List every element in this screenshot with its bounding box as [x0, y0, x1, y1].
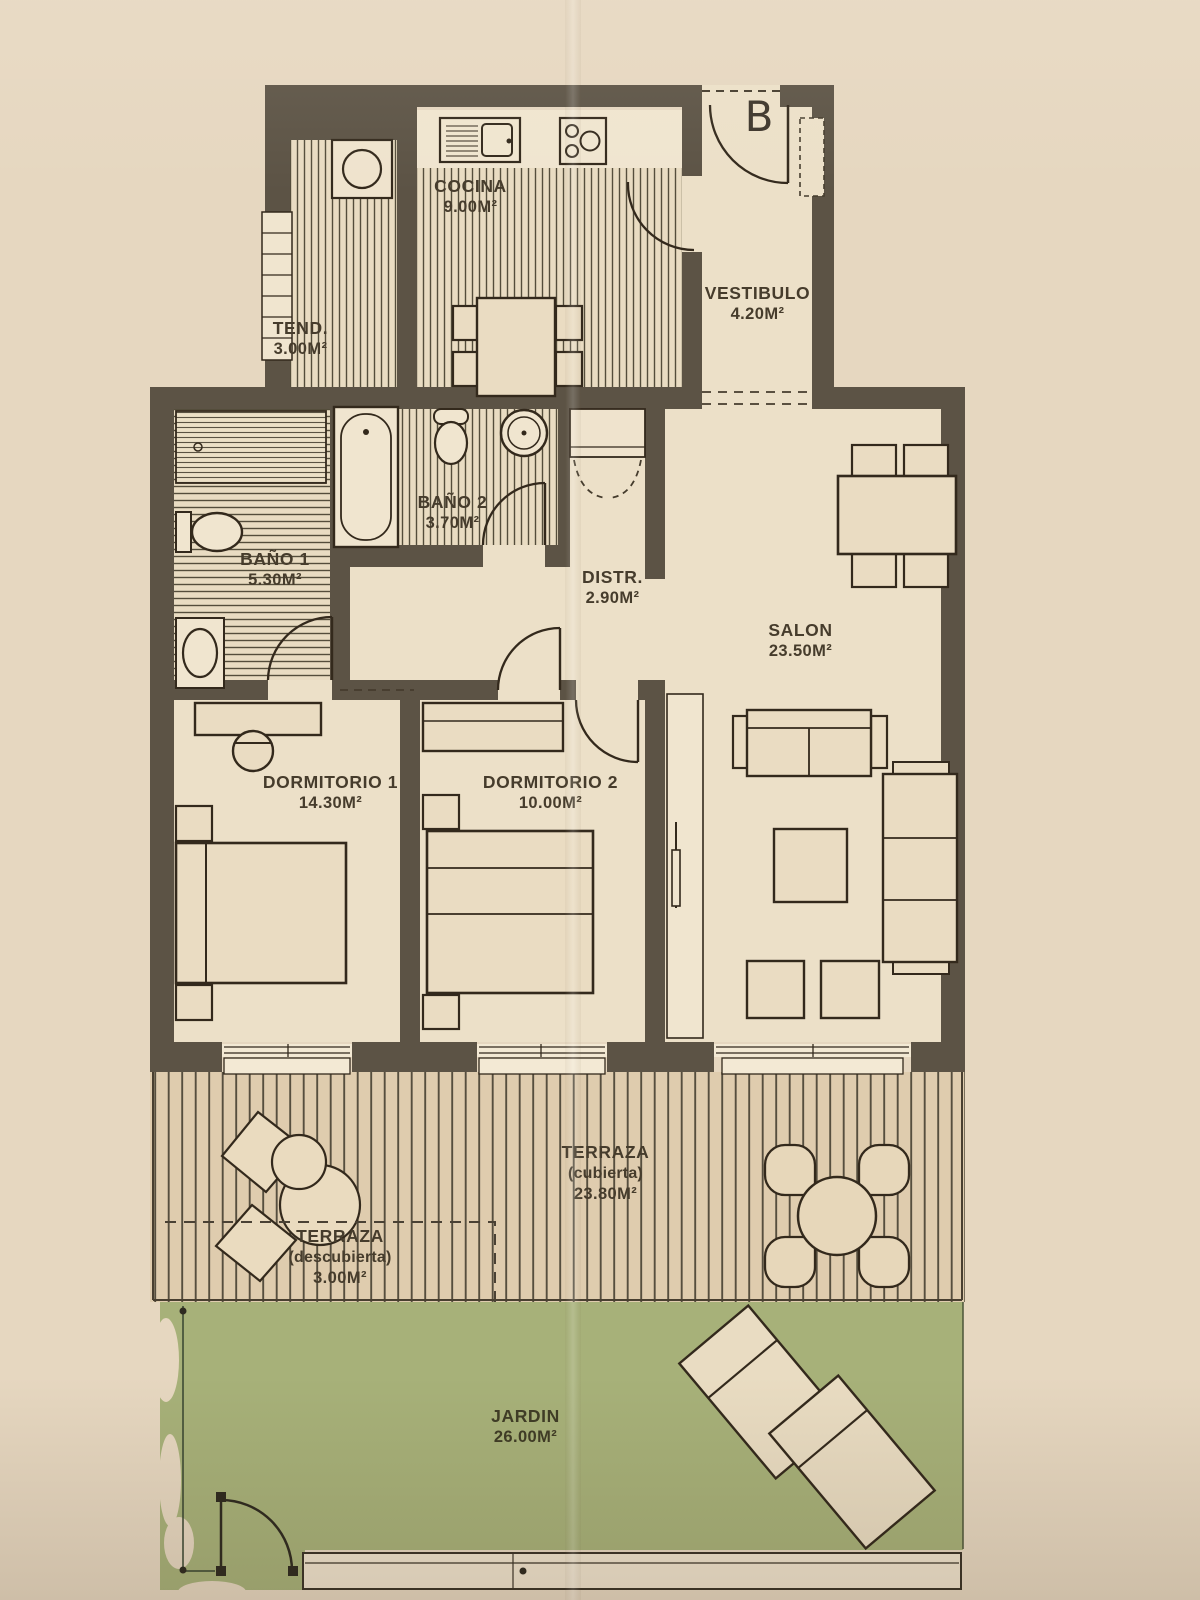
room-name: COCINA	[398, 176, 543, 197]
room-area: 3.00m²	[240, 1268, 440, 1289]
room-area: 2.90m²	[540, 588, 685, 609]
floorplan-photo: B COCINA 9.00m² TEND. 3.00m² VESTIBULO 4…	[0, 0, 1200, 1600]
room-label-distribuidor: DISTR. 2.90m²	[540, 567, 685, 609]
room-label-terraza-descubierta: TERRAZA (descubierta) 3.00m²	[240, 1226, 440, 1289]
room-label-vestibulo: VESTIBULO 4.20m²	[685, 283, 830, 325]
room-area: 3.70m²	[380, 513, 525, 534]
room-area: 5.30m²	[200, 570, 350, 591]
room-area: 9.00m²	[398, 197, 543, 218]
room-area: 3.00m²	[228, 339, 373, 360]
room-area: 23.80m²	[518, 1184, 693, 1205]
room-area: 26.00m²	[438, 1427, 613, 1448]
room-name: TERRAZA	[240, 1226, 440, 1247]
room-label-jardin: JARDIN 26.00m²	[438, 1406, 613, 1448]
room-name: TEND.	[228, 318, 373, 339]
room-name: SALON	[723, 620, 878, 641]
entrance-letter: B	[737, 96, 781, 138]
room-name: VESTIBULO	[685, 283, 830, 304]
room-name: DORMITORIO 2	[458, 772, 643, 793]
room-area: 4.20m²	[685, 304, 830, 325]
room-subname: (descubierta)	[240, 1247, 440, 1268]
room-area: 10.00m²	[458, 793, 643, 814]
room-label-cocina: COCINA 9.00m²	[398, 176, 543, 218]
room-name: TERRAZA	[518, 1142, 693, 1163]
room-label-tendedero: TEND. 3.00m²	[228, 318, 373, 360]
room-label-bano2: BAÑO 2 3.70m²	[380, 492, 525, 534]
room-label-bano1: BAÑO 1 5.30m²	[200, 549, 350, 591]
room-name: BAÑO 1	[200, 549, 350, 570]
room-label-dormitorio2: DORMITORIO 2 10.00m²	[458, 772, 643, 814]
room-label-terraza-cubierta: TERRAZA (cubierta) 23.80m²	[518, 1142, 693, 1205]
room-label-salon: SALON 23.50m²	[723, 620, 878, 662]
room-labels: B COCINA 9.00m² TEND. 3.00m² VESTIBULO 4…	[0, 0, 1200, 1600]
room-name: DISTR.	[540, 567, 685, 588]
room-subname: (cubierta)	[518, 1163, 693, 1184]
room-area: 14.30m²	[238, 793, 423, 814]
room-area: 23.50m²	[723, 641, 878, 662]
room-label-dormitorio1: DORMITORIO 1 14.30m²	[238, 772, 423, 814]
room-name: BAÑO 2	[380, 492, 525, 513]
room-name: DORMITORIO 1	[238, 772, 423, 793]
room-name: JARDIN	[438, 1406, 613, 1427]
